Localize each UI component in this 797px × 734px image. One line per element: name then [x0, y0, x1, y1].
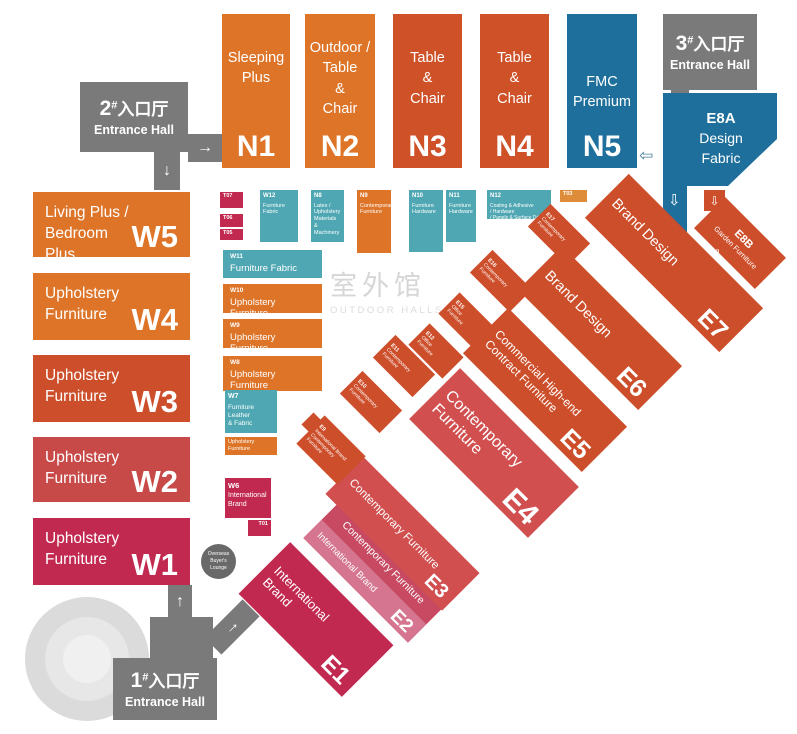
- hall-n9[interactable]: N9 Contemporary Furniture: [357, 190, 391, 253]
- hall-w8-code: W8: [230, 359, 315, 367]
- hall-t01[interactable]: T01: [248, 520, 271, 536]
- hall-w11-label: Furniture Fabric: [230, 263, 297, 274]
- entrance-hall-1[interactable]: 1#入口厅 Entrance Hall: [113, 658, 217, 720]
- hall-w6[interactable]: W6 International Brand: [225, 478, 271, 518]
- hall-w12-label: Furniture Fabric: [263, 203, 285, 216]
- hall-e7-code: E7: [694, 306, 731, 343]
- hall-w2-code: W2: [132, 470, 179, 495]
- hall-t03[interactable]: T03: [560, 190, 587, 202]
- hall-n11-label: Furniture Hardware: [449, 203, 473, 216]
- arrow-up-right-icon: →: [221, 616, 244, 639]
- hall-w11-code: W11: [230, 253, 315, 261]
- entrance-1-subtitle: Entrance Hall: [125, 695, 205, 709]
- hall-n1-code: N1: [237, 133, 275, 160]
- entrance-1-step: [150, 617, 213, 659]
- entrance-3-title: 3#入口厅: [676, 32, 745, 55]
- hall-w12-code: W12: [263, 193, 295, 201]
- hall-w10-code: W10: [230, 287, 315, 295]
- hall-t05[interactable]: T05: [220, 229, 243, 240]
- hall-n10[interactable]: N10 Furniture Hardware: [409, 190, 443, 252]
- hall-n4[interactable]: Table & Chair N4: [480, 14, 549, 168]
- entrance-1-title: 1#入口厅: [131, 669, 200, 692]
- hall-w4-code: W4: [132, 308, 179, 333]
- hall-n5[interactable]: FMC Premium N5: [567, 14, 637, 168]
- hall-t03-code: T03: [563, 191, 572, 197]
- hall-w6-label: International Brand: [228, 492, 267, 508]
- entrance-1-connector-up: ↑: [168, 585, 192, 618]
- entrance-hall-3[interactable]: 3#入口厅 Entrance Hall: [663, 14, 757, 90]
- hall-w8-label: Upholstery Furniture: [230, 369, 275, 391]
- hall-e1-label: International Brand: [260, 563, 333, 636]
- hall-n4-code: N4: [495, 133, 533, 160]
- hall-w2-label: Upholstery Furniture: [45, 448, 119, 495]
- hall-w8[interactable]: W8 Upholstery Furniture: [223, 356, 322, 391]
- hall-n1[interactable]: Sleeping Plus N1: [222, 14, 290, 168]
- hall-w3[interactable]: Upholstery Furniture W3: [33, 355, 190, 422]
- hall-w9-code: W9: [230, 322, 315, 330]
- hall-e1-code: E1: [318, 653, 353, 688]
- entrance-2-title: 2#入口厅: [100, 97, 169, 120]
- hall-n12-code: N12: [490, 193, 548, 201]
- watermark-en: OUTDOOR HALLS: [330, 305, 444, 316]
- hall-e6-code: E6: [613, 364, 650, 401]
- entrance-2-subtitle: Entrance Hall: [94, 123, 174, 137]
- hall-e16[interactable]: E16 Contemporary Furniture: [470, 250, 532, 312]
- hall-w4-label: Upholstery Furniture: [45, 284, 119, 333]
- hall-e8a-label: E8ADesign Fabric: [675, 109, 767, 170]
- hall-w10-label: Upholstery Furniture: [230, 297, 275, 319]
- hall-w6-code: W6: [228, 481, 268, 490]
- hall-t01-code: T01: [259, 521, 268, 527]
- hall-w7-label: Furniture Leather & Fabric: [228, 404, 254, 427]
- hall-w9-label: Upholstery Furniture: [230, 332, 275, 354]
- hall-n4-label: Table & Chair: [497, 48, 532, 109]
- hall-n2-code: N2: [321, 133, 359, 160]
- hall-w1-label: Upholstery Furniture: [45, 529, 119, 578]
- hall-w1[interactable]: Upholstery Furniture W1: [33, 518, 190, 585]
- hall-n9-label: Contemporary Furniture: [360, 203, 395, 216]
- hall-n9-code: N9: [360, 193, 388, 201]
- hall-w10[interactable]: W10 Upholstery Furniture: [223, 284, 322, 313]
- hall-w5-label: Living Plus / Bedroom Plus: [45, 203, 132, 250]
- hall-e10[interactable]: E10 Contemporary Furniture: [340, 371, 402, 433]
- hall-w3-label: Upholstery Furniture: [45, 366, 119, 415]
- hall-w11[interactable]: W11 Furniture Fabric: [223, 250, 322, 278]
- hall-n2-label: Outdoor / Table & Chair: [310, 38, 370, 119]
- exhibition-floorplan: 室外馆 OUTDOOR HALLS Sleeping Plus N1 Outdo…: [0, 0, 797, 734]
- hall-t07[interactable]: T07: [220, 192, 243, 208]
- arrow-down-icon: ⇩: [712, 248, 723, 261]
- hall-n10-code: N10: [412, 193, 440, 201]
- hall-n10-label: Furniture Hardware: [412, 203, 436, 216]
- hall-w4[interactable]: Upholstery Furniture W4: [33, 273, 190, 340]
- hall-n3[interactable]: Table & Chair N3: [393, 14, 462, 168]
- hall-t06-code: T06: [223, 215, 232, 221]
- entrance-hall-2[interactable]: 2#入口厅 Entrance Hall: [80, 82, 188, 152]
- entrance-2-connector-right: →: [188, 134, 222, 162]
- hall-w9[interactable]: W9 Upholstery Furniture: [223, 319, 322, 348]
- hall-w7-upholstery-strip[interactable]: Upholstery Furniture: [225, 437, 277, 455]
- hall-w12[interactable]: W12 Furniture Fabric: [260, 190, 298, 242]
- hall-e5-code: E5: [557, 426, 594, 463]
- arrow-down-icon: ⇩: [668, 193, 681, 208]
- hall-w7[interactable]: W7 Furniture Leather & Fabric: [225, 390, 277, 433]
- arrow-down-icon: ↓: [163, 163, 171, 179]
- hall-w2[interactable]: Upholstery Furniture W2: [33, 437, 190, 502]
- hall-e2-code: E2: [387, 607, 416, 636]
- roundabout-center: [63, 635, 111, 683]
- hall-e6-label: Brand Design: [540, 268, 614, 342]
- hall-n5-label: FMC Premium: [573, 72, 631, 113]
- hall-w3-code: W3: [132, 390, 179, 415]
- hall-n3-code: N3: [408, 133, 446, 160]
- hall-w7-code: W7: [228, 393, 274, 402]
- hall-n11[interactable]: N11 Furniture Hardware: [446, 190, 476, 242]
- arrow-up-icon: ↑: [176, 594, 184, 610]
- hall-n11-code: N11: [449, 193, 473, 201]
- hall-n1-label: Sleeping Plus: [228, 48, 284, 89]
- hall-e4-code: E4: [498, 485, 542, 529]
- arrow-left-icon: ⇦: [639, 147, 653, 164]
- hall-n3-label: Table & Chair: [410, 48, 445, 109]
- arrow-right-icon: →: [197, 140, 213, 156]
- hall-t05-code: T05: [223, 230, 232, 236]
- entrance-3-subtitle: Entrance Hall: [670, 58, 750, 72]
- hall-n8-code: N8: [314, 193, 341, 201]
- hall-t06[interactable]: T06: [220, 214, 243, 227]
- hall-n8[interactable]: N8 Latex / Upholstery Materials & Machin…: [311, 190, 344, 242]
- watermark-cn: 室外馆: [330, 264, 444, 303]
- strip-label: Upholstery Furniture: [228, 439, 274, 453]
- outdoor-halls-watermark: 室外馆 OUTDOOR HALLS: [330, 264, 444, 316]
- hall-w5[interactable]: Living Plus / Bedroom Plus W5: [33, 192, 190, 257]
- hall-n8-label: Latex / Upholstery Materials & Machinery: [314, 203, 340, 237]
- hall-w5-code: W5: [132, 225, 179, 250]
- hall-n5-code: N5: [583, 133, 621, 160]
- entrance-2-connector-down: ↓: [154, 152, 180, 190]
- hall-t07-code: T07: [223, 193, 232, 199]
- hall-w1-code: W1: [132, 553, 179, 578]
- hall-n2[interactable]: Outdoor / Table & Chair N2: [305, 14, 375, 168]
- overseas-buyers-lounge[interactable]: Overseas Buyer's Lounge: [201, 544, 236, 579]
